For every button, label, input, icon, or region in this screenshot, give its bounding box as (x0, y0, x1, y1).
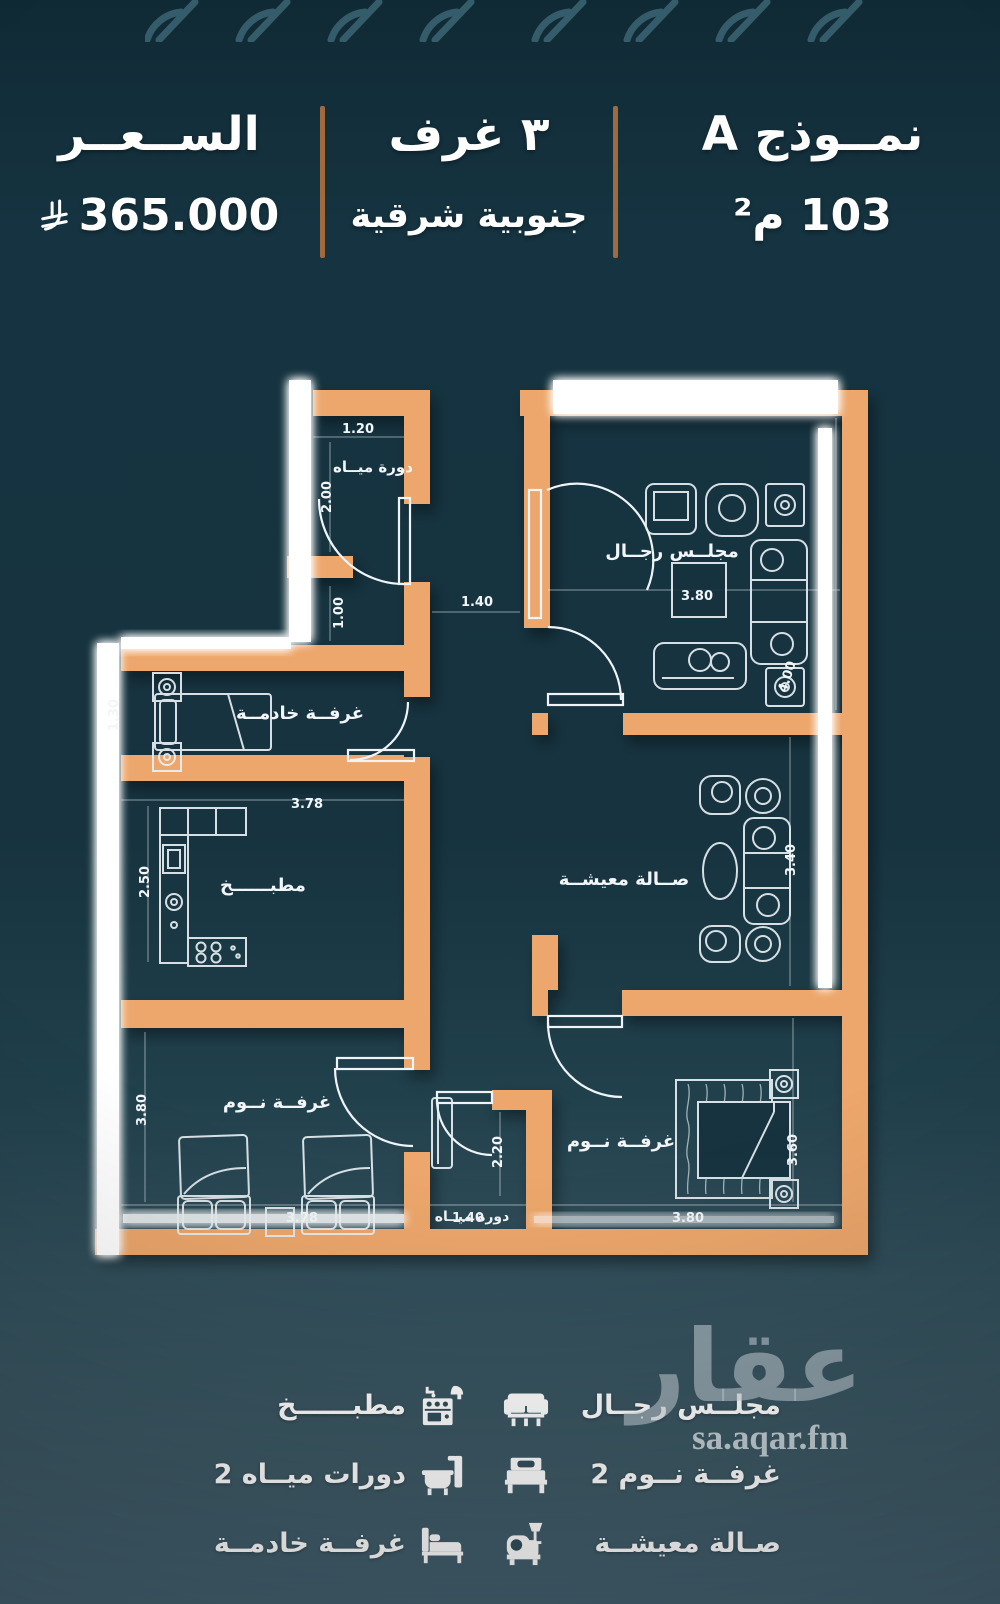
room-label-living: صــالة معيشــة (559, 869, 690, 890)
price-column: الســعــر 365.000 (0, 100, 318, 248)
legend-row-kitchen: مطبــــــخ (188, 1378, 466, 1434)
door-bathroom-bottom (437, 1092, 492, 1155)
dim-label: 3.80 (681, 589, 713, 604)
legend-row-maid-room: غرفــة خادمــة (188, 1516, 466, 1572)
price-label: الســعــر (0, 100, 318, 170)
legend-label-kitchen: مطبــــــخ (188, 1378, 406, 1434)
saudi-riyal-icon (39, 198, 69, 234)
price-row: 365.000 (0, 184, 318, 248)
door-majlis (548, 627, 623, 705)
header-divider-left (320, 106, 325, 258)
dim-label: 2.00 (320, 481, 335, 513)
living-furniture (700, 776, 790, 962)
header-divider-right (613, 106, 618, 258)
model-column: نمــوذج A 103 م² (625, 100, 1000, 248)
dim-label: 1.40 (461, 595, 493, 610)
door-bedroom-left (335, 1058, 413, 1146)
top-pattern (145, 0, 885, 42)
majlis-sofa-icon (503, 1383, 549, 1429)
rooms-count: ٣ غرف (330, 100, 608, 170)
floor-plan: دورة ميــاه مجلــس رجــال غرفــة خادمــة… (55, 355, 945, 1285)
room-label-kitchen: مطبــــــخ (220, 875, 306, 896)
type-column: ٣ غرف جنوبية شرقية (330, 100, 608, 248)
room-label-bedroom-right: غرفــة نــوم (567, 1131, 675, 1152)
door-bedroom-right (548, 1016, 622, 1097)
legend-row-bathrooms: 2 دورات ميــاه (188, 1447, 466, 1503)
dim-label: 1.40 (452, 1211, 484, 1226)
bathtub-icon (420, 1452, 466, 1498)
watermark-brand: عقار (628, 1312, 863, 1422)
orientation: جنوبية شرقية (330, 184, 608, 248)
dim-label: 3.80 (672, 1211, 704, 1226)
legend-label-bathrooms: 2 دورات ميــاه (188, 1447, 406, 1503)
room-label-bathroom-top: دورة ميــاه (333, 458, 413, 476)
kitchen-stove-icon (420, 1383, 466, 1429)
single-bed-icon (420, 1521, 466, 1567)
legend-label-maid-room: غرفــة خادمــة (188, 1516, 406, 1572)
legend-label-living: صـالة معيشــة (563, 1516, 781, 1572)
dim-label: 3.80 (135, 1094, 150, 1126)
room-label-maid-room: غرفــة خادمــة (236, 703, 364, 724)
dim-label: 2.50 (138, 866, 153, 898)
dim-label: 1.30 (107, 699, 122, 731)
dim-label: 3.40 (784, 844, 799, 876)
dim-label: 3.60 (786, 1134, 801, 1166)
room-label-bedroom-left: غرفــة نــوم (223, 1092, 331, 1113)
legend-row-living: صـالة معيشــة (503, 1516, 781, 1572)
bed-icon (503, 1452, 549, 1498)
dim-label: 1.20 (342, 422, 374, 437)
model-area: 103 م² (625, 184, 1000, 248)
room-label-majlis: مجلــس رجــال (605, 541, 739, 562)
living-armchair-icon (503, 1521, 549, 1567)
model-title: نمــوذج A (625, 100, 1000, 170)
bedroom-right-furniture (676, 1070, 798, 1208)
dim-label: 3.78 (291, 797, 323, 812)
price-value: 365.000 (79, 184, 279, 248)
dim-label: 3.78 (286, 1211, 318, 1226)
dim-label: 1.00 (332, 597, 347, 629)
flyer: نمــوذج A 103 م² ٣ غرف جنوبية شرقية السـ… (0, 0, 1000, 1604)
doors (319, 484, 653, 1155)
watermark-site: sa.aqar.fm (692, 1418, 848, 1458)
dim-label: 2.20 (491, 1136, 506, 1168)
